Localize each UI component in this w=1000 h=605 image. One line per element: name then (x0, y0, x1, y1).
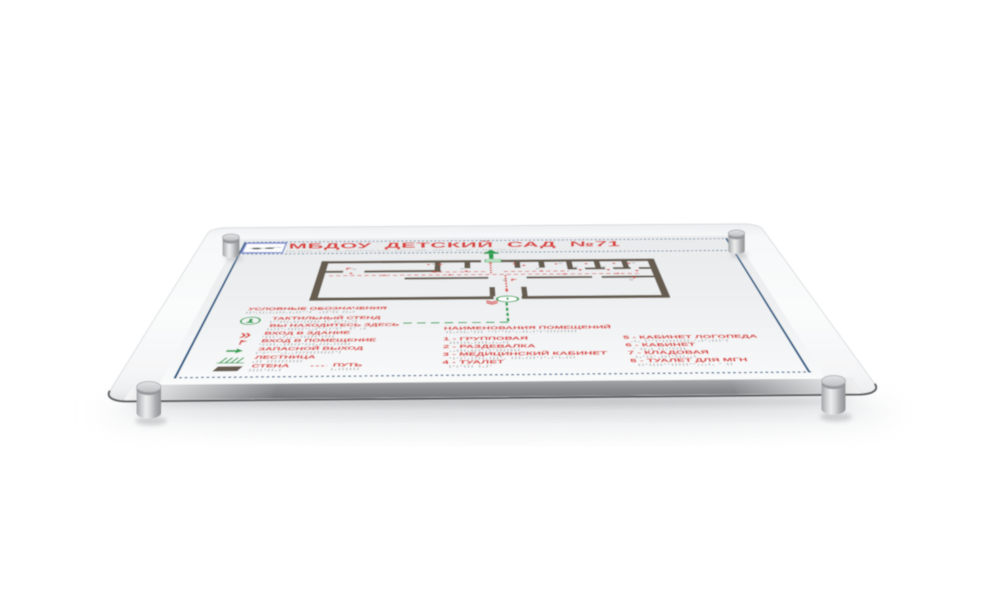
svg-text:ЛЕСТНИЦА: ЛЕСТНИЦА (254, 354, 317, 360)
svg-text:4 - ТУАЛЕТ: 4 - ТУАЛЕТ (442, 359, 505, 365)
svg-text:ПУТЬ: ПУТЬ (332, 362, 363, 368)
svg-text:ТАКТИЛЬНЫЙ СТЕНД: ТАКТИЛЬНЫЙ СТЕНД (271, 315, 382, 320)
svg-text:1 - ГРУППОВАЯ: 1 - ГРУППОВАЯ (443, 335, 528, 341)
svg-text:6 - КАБИНЕТ: 6 - КАБИНЕТ (625, 342, 697, 348)
svg-text:ВХОД В ЗДАНИЕ: ВХОД В ЗДАНИЕ (263, 330, 351, 335)
svg-text:7 - КЛАДОВАЯ: 7 - КЛАДОВАЯ (627, 349, 710, 355)
svg-text:2 - РАЗДЕВАЛКА: 2 - РАЗДЕВАЛКА (443, 343, 536, 349)
svg-text:8 - ТУАЛЕТ ДЛЯ МГН: 8 - ТУАЛЕТ ДЛЯ МГН (629, 357, 748, 364)
svg-text:СТЕНА: СТЕНА (251, 363, 291, 369)
